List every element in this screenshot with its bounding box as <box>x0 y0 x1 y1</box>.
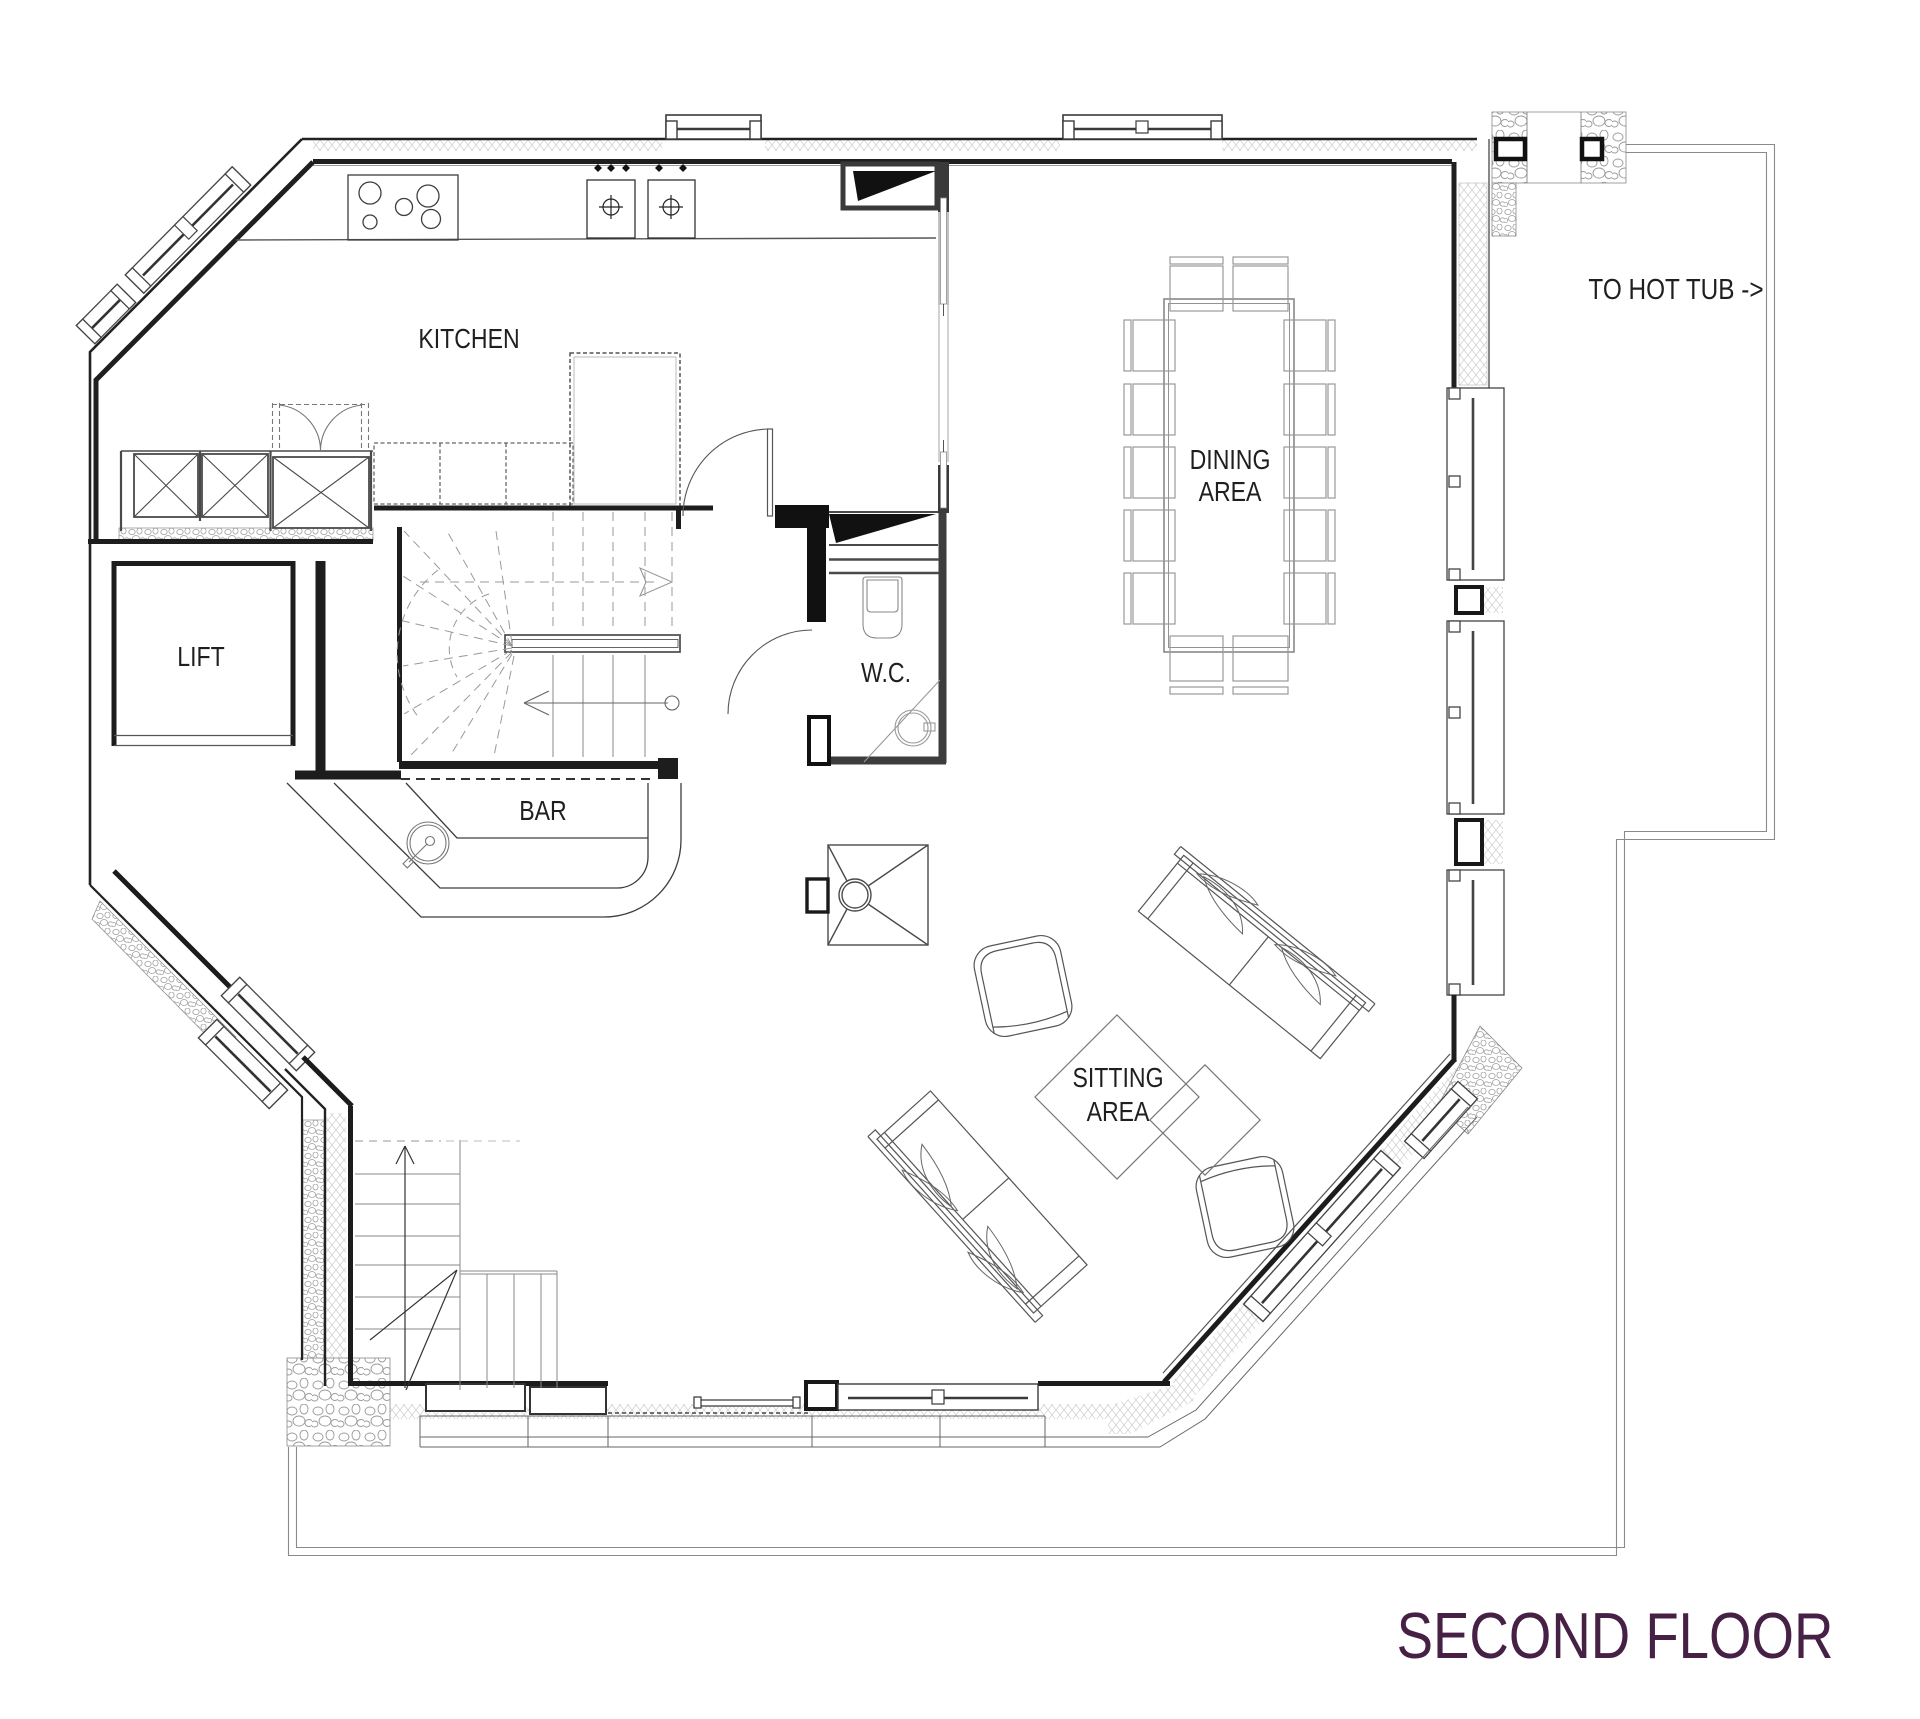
svg-text:TO HOT TUB ->: TO HOT TUB -> <box>1588 273 1763 305</box>
svg-text:BAR: BAR <box>519 796 566 826</box>
svg-text:SECOND FLOOR: SECOND FLOOR <box>1397 1600 1834 1673</box>
svg-text:W.C.: W.C. <box>861 658 911 688</box>
svg-text:AREA: AREA <box>1087 1097 1150 1127</box>
svg-text:LIFT: LIFT <box>177 642 224 672</box>
svg-text:AREA: AREA <box>1199 477 1262 507</box>
svg-text:KITCHEN: KITCHEN <box>418 324 519 354</box>
svg-text:DINING: DINING <box>1190 445 1271 475</box>
svg-text:SITTING: SITTING <box>1072 1063 1163 1093</box>
